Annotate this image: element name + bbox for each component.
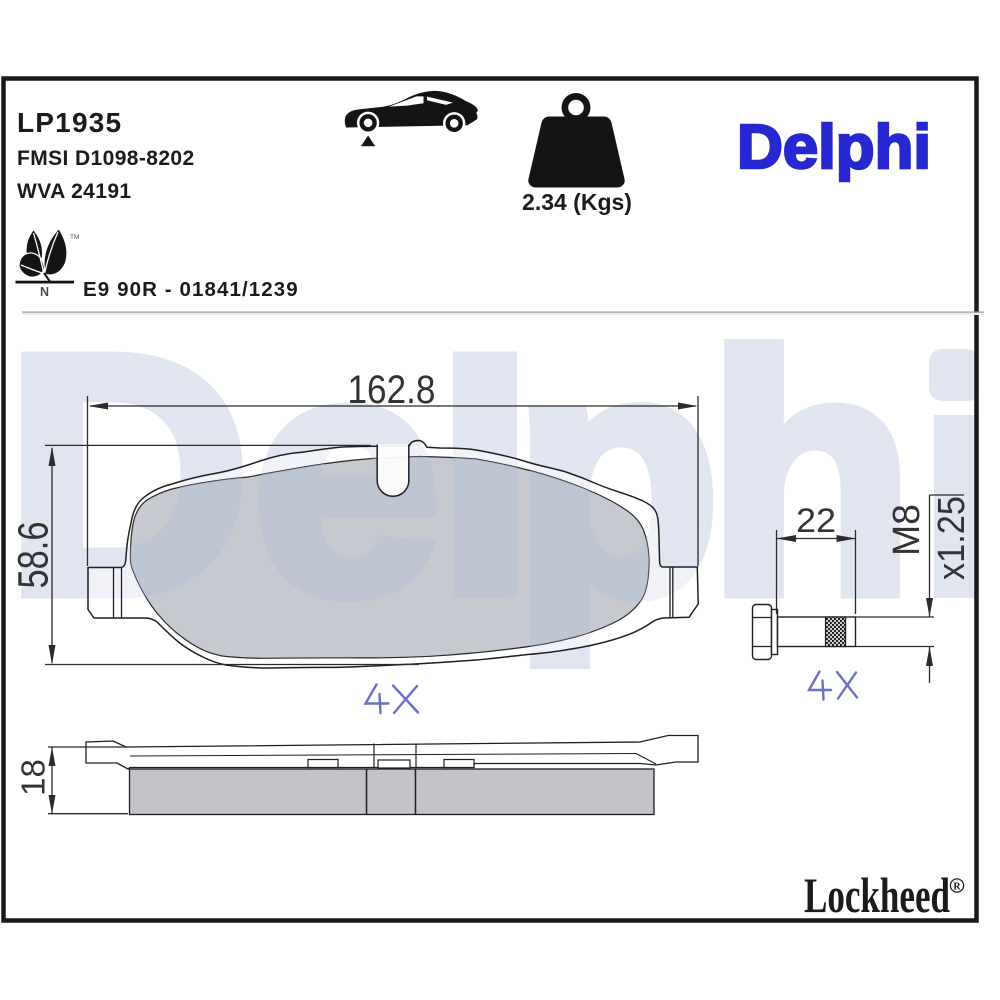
- svg-text:E9 90R - 01841/1239: E9 90R - 01841/1239: [83, 278, 299, 301]
- svg-text:2.34 (Kgs): 2.34 (Kgs): [522, 189, 632, 215]
- svg-text:58.6: 58.6: [10, 522, 58, 589]
- svg-text:FMSI D1098-8202: FMSI D1098-8202: [17, 147, 195, 170]
- svg-text:x1.25: x1.25: [931, 496, 973, 580]
- svg-text:22: 22: [796, 502, 836, 540]
- svg-text:Delphi: Delphi: [737, 113, 931, 182]
- svg-text:TM: TM: [70, 234, 79, 241]
- svg-text:162.8: 162.8: [348, 368, 436, 412]
- svg-text:WVA 24191: WVA 24191: [17, 180, 132, 203]
- svg-text:R: R: [953, 882, 961, 893]
- svg-text:LP1935: LP1935: [17, 107, 122, 138]
- svg-text:18: 18: [15, 759, 52, 796]
- svg-text:N: N: [40, 285, 49, 299]
- svg-text:Lockheed: Lockheed: [804, 867, 950, 923]
- svg-text:M8: M8: [886, 504, 928, 556]
